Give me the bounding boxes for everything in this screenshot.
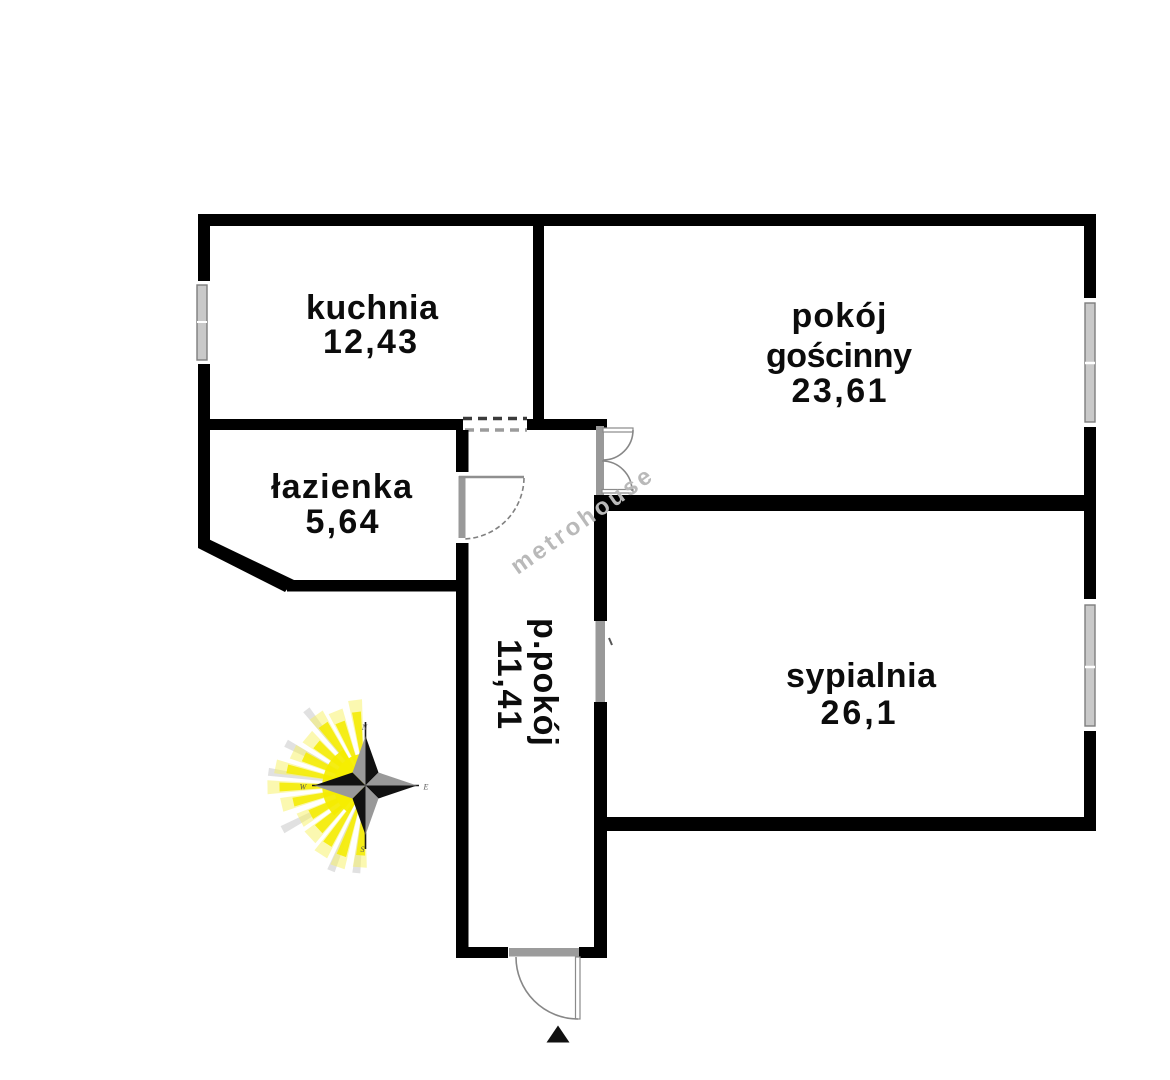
svg-text:26,1: 26,1 [821,694,896,732]
svg-text:S: S [361,845,365,854]
svg-text:gościnny: gościnny [766,337,912,375]
svg-text:E: E [423,783,429,792]
svg-text:sypialnia: sypialnia [786,657,937,695]
svg-text:pokój: pokój [792,297,887,335]
svg-text:łazienka: łazienka [271,468,413,506]
svg-text:11,41: 11,41 [490,639,528,729]
svg-text:N: N [361,723,368,732]
svg-text:23,61: 23,61 [792,372,887,410]
svg-text:5,64: 5,64 [306,503,379,541]
svg-text:kuchnia: kuchnia [306,289,439,327]
svg-text:p.pokój: p.pokój [526,618,564,746]
svg-text:12,43: 12,43 [323,323,417,361]
